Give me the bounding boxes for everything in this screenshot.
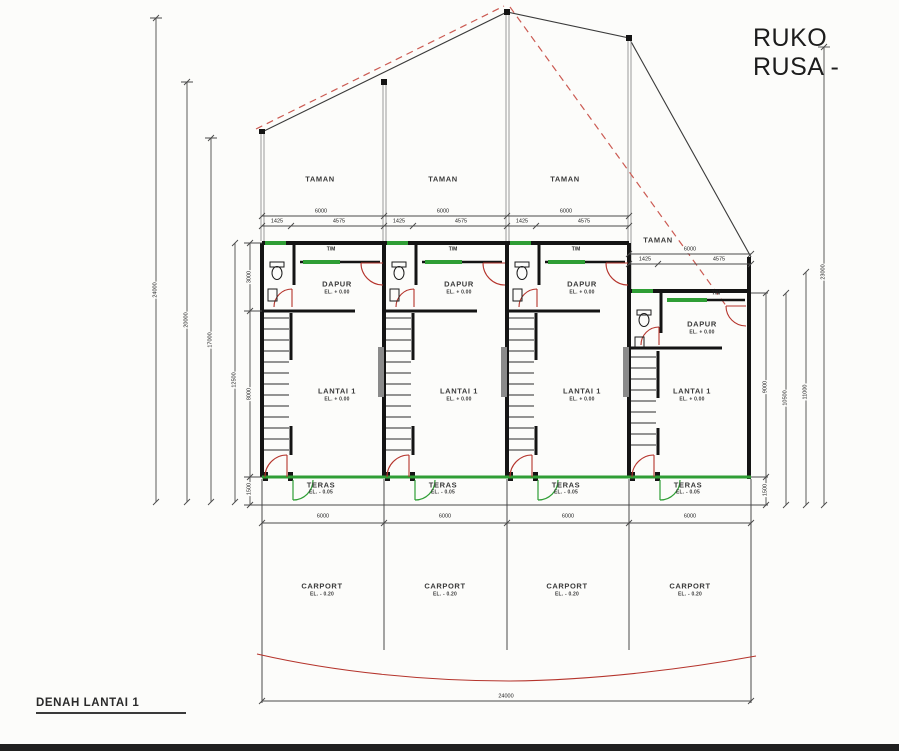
label-teras-unit2: TERAS [429,481,457,489]
dim-left-building: 12500 [232,371,238,388]
floor-plan-drawing [0,0,899,751]
dim-right-overall: 23000 [821,263,827,280]
label-carport-unit3: CARPORT [546,582,587,590]
dimension-lines [150,15,830,704]
label-teras-unit1: TERAS [307,481,335,489]
street-edge-red [257,654,756,681]
dim-split-b-unit1: 4575 [332,219,346,225]
label-dapur-unit1: DAPUR [322,280,352,288]
dim-split-a-unit2: 1425 [392,219,406,225]
dim-right-building: 10500 [783,389,789,406]
dim-carport-unit4: 6000 [683,514,697,520]
label-teras-el-unit1: EL. - 0.05 [309,491,333,496]
dim-chain-teras: 1500 [247,482,253,496]
dim-right-inner: 11000 [803,384,809,401]
label-dapur-unit2: DAPUR [444,280,474,288]
dim-taman-width-unit3: 6000 [559,209,573,215]
dim-left-inner: 17000 [208,331,214,348]
label-carport-el-unit3: EL. - 0.20 [555,593,579,598]
dim-split-a-unit3: 1425 [515,219,529,225]
label-dapur-el-unit2: EL. + 0.00 [446,291,471,296]
dim-taman-width-unit4: 6000 [683,247,697,253]
label-taman-unit2: TAMAN [428,175,458,183]
label-taman-unit1: TAMAN [305,175,335,183]
label-carport-unit1: CARPORT [301,582,342,590]
label-carport-el-unit1: EL. - 0.20 [310,593,334,598]
dim-left-mid: 20000 [184,311,190,328]
dim-total-width: 24000 [497,694,514,700]
dim-carport-unit2: 6000 [438,514,452,520]
label-lantai1-unit2: LANTAI 1 [440,387,478,395]
label-carport-unit2: CARPORT [424,582,465,590]
label-teras-el-unit3: EL. - 0.05 [554,491,578,496]
label-dapur-unit3: DAPUR [567,280,597,288]
label-tm-unit3: T/M [572,248,581,253]
label-tm-unit4: T/M [712,292,721,297]
bathroom-fixtures [268,262,651,349]
dim-split-b-unit2: 4575 [454,219,468,225]
dim-taman-width-unit2: 6000 [436,209,450,215]
label-lantai1-unit3: LANTAI 1 [563,387,601,395]
label-teras-el-unit4: EL. - 0.05 [676,491,700,496]
floor-plan-sheet: RUKO RUSA - DENAH LANTAI 1 TAMAN TAMAN T… [0,0,899,751]
label-teras-unit3: TERAS [552,481,580,489]
stairs [264,318,656,450]
dim-split-a-unit4: 1425 [638,257,652,263]
sheet-title: RUKO RUSA - [753,24,899,82]
label-lantai1-el-unit4: EL. + 0.00 [679,398,704,403]
label-carport-el-unit2: EL. - 0.20 [433,593,457,598]
label-lantai1-el-unit2: EL. + 0.00 [446,398,471,403]
dim-right-lantai: 9000 [763,380,769,394]
label-dapur-el-unit4: EL. + 0.00 [689,331,714,336]
dim-carport-unit1: 6000 [316,514,330,520]
dim-chain-lantai: 8000 [247,387,253,401]
label-dapur-el-unit3: EL. + 0.00 [569,291,594,296]
label-lantai1-el-unit1: EL. + 0.00 [324,398,349,403]
label-taman-unit3: TAMAN [550,175,580,183]
dim-left-overall: 24000 [153,281,159,298]
footer-bar [0,744,899,751]
dim-split-a-unit1: 1425 [270,219,284,225]
drawing-caption: DENAH LANTAI 1 [36,697,186,714]
dim-right-teras: 1500 [763,483,769,497]
label-teras-unit4: TERAS [674,481,702,489]
dim-split-b-unit3: 4575 [577,219,591,225]
label-lantai1-unit1: LANTAI 1 [318,387,356,395]
label-carport-unit4: CARPORT [669,582,710,590]
label-carport-el-unit4: EL. - 0.20 [678,593,702,598]
label-lantai1-el-unit3: EL. + 0.00 [569,398,594,403]
label-tm-unit2: T/M [449,248,458,253]
dim-carport-unit3: 6000 [561,514,575,520]
label-lantai1-unit4: LANTAI 1 [673,387,711,395]
label-dapur-el-unit1: EL. + 0.00 [324,291,349,296]
dim-taman-width-unit1: 6000 [314,209,328,215]
label-teras-el-unit2: EL. - 0.05 [431,491,455,496]
label-tm-unit1: T/M [327,248,336,253]
dim-split-b-unit4: 4575 [712,257,726,263]
label-taman-unit4: TAMAN [643,236,673,244]
label-dapur-unit4: DAPUR [687,320,717,328]
dim-chain-dapur: 3000 [247,270,253,284]
